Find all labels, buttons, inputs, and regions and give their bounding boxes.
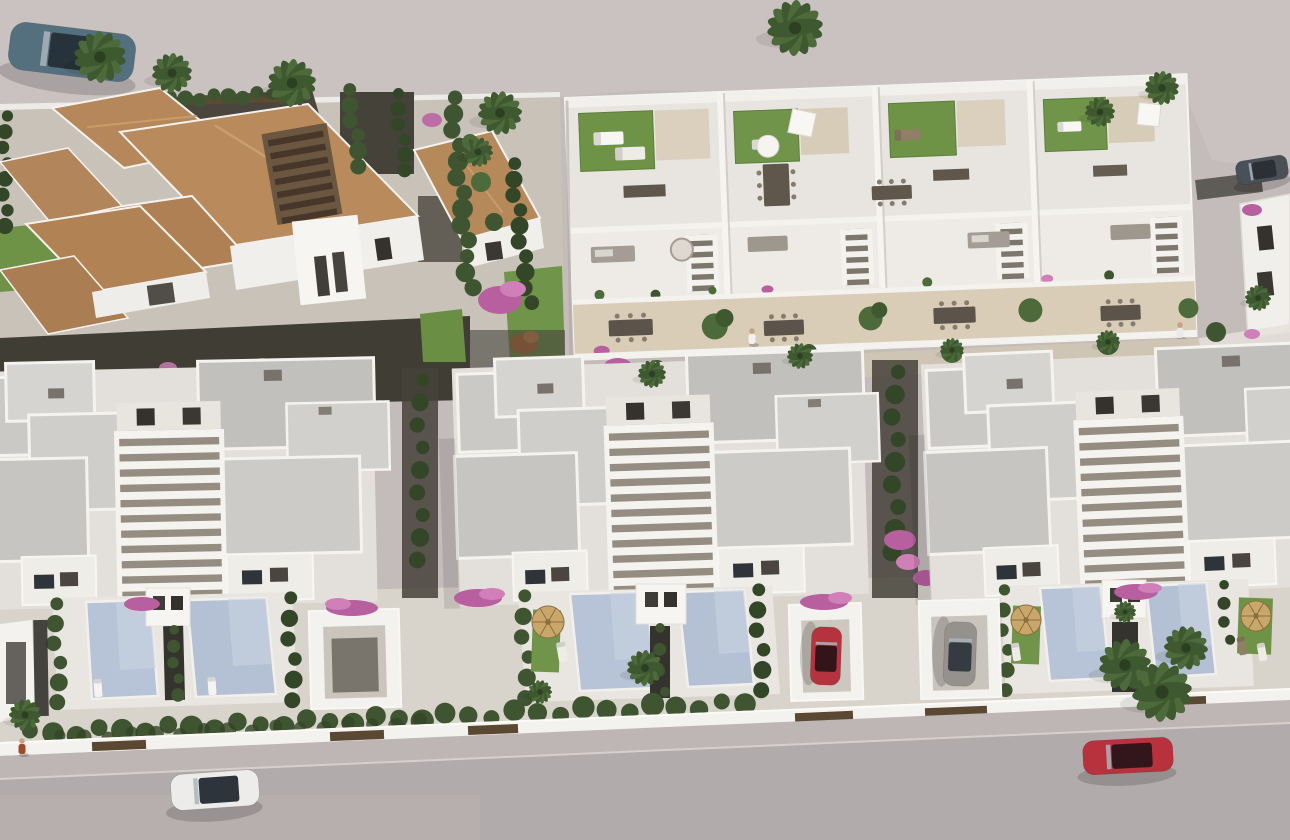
square-parasol: [788, 109, 816, 137]
bougainvillea: [884, 530, 916, 550]
roof-vent: [537, 383, 553, 393]
square-parasol: [1137, 103, 1161, 127]
bougainvillea: [828, 592, 852, 604]
building: [1240, 194, 1290, 338]
sofa: [747, 236, 788, 253]
bougainvillea: [500, 281, 526, 297]
window: [270, 568, 288, 582]
doorway: [1141, 395, 1160, 413]
roof-terrace-tile: [956, 99, 1006, 147]
window: [242, 570, 262, 584]
doorway: [672, 401, 691, 419]
villa-wall: [606, 394, 711, 427]
parked-car-gray: [931, 616, 977, 688]
car-red-driving: [1076, 737, 1177, 789]
roof-garden: [888, 101, 956, 157]
villa-roof: [218, 456, 362, 555]
bougainvillea: [479, 588, 505, 600]
roof-vent: [1222, 355, 1240, 367]
doorway: [171, 596, 183, 610]
doorway: [664, 592, 677, 607]
outdoor-kitchen: [933, 169, 969, 181]
bougainvillea: [124, 597, 160, 611]
stairwell: [840, 228, 874, 285]
cypress-hedge: [409, 374, 430, 569]
flowers: [1242, 204, 1262, 216]
lawn: [420, 309, 466, 362]
villa-wall: [116, 401, 221, 433]
doorway: [1095, 397, 1114, 415]
window: [1257, 225, 1274, 250]
round-parasol: [757, 135, 780, 158]
doorway: [645, 592, 658, 607]
sofa: [1110, 224, 1151, 241]
sun-lounger: [207, 677, 216, 696]
louvered-pergola: [114, 429, 227, 599]
villa-roof: [925, 447, 1051, 554]
sofa-cushion: [595, 249, 613, 257]
window: [1204, 556, 1225, 571]
doorway: [182, 407, 200, 424]
stairwell: [1150, 216, 1184, 273]
window: [1022, 562, 1041, 577]
roof-vent: [264, 370, 282, 381]
window: [1232, 553, 1251, 568]
window: [733, 563, 753, 578]
villa-roof: [0, 458, 89, 563]
roof-vent: [1007, 378, 1023, 389]
straw-parasol: [532, 606, 564, 638]
bougainvillea: [325, 598, 351, 610]
entrance-box: [636, 584, 686, 624]
shrub: [1206, 322, 1226, 342]
window: [34, 574, 54, 588]
window: [996, 565, 1017, 580]
villa-roof: [707, 448, 852, 548]
stairwell: [995, 222, 1029, 279]
gravel-bed: [33, 620, 49, 716]
shrub: [471, 172, 491, 192]
outdoor-kitchen: [623, 184, 665, 198]
roof-vent: [808, 399, 821, 407]
window: [485, 241, 503, 261]
roof-terrace-tile: [654, 109, 710, 161]
roof-vent: [48, 388, 64, 398]
aerial-render: [0, 0, 1290, 840]
villa-roof: [1177, 440, 1290, 542]
shrub: [485, 213, 503, 231]
doorway: [136, 408, 154, 425]
window: [525, 570, 545, 585]
pool-steps: [228, 598, 272, 666]
window: [60, 572, 78, 586]
sofa-cushion: [972, 235, 989, 243]
window: [375, 237, 393, 261]
flowers: [422, 113, 442, 127]
driveway: [331, 637, 378, 692]
daybed: [670, 238, 693, 261]
window: [761, 560, 779, 575]
louvered-pergola: [1073, 416, 1190, 588]
scene-canvas: [0, 0, 1290, 840]
villa-roof: [454, 453, 579, 559]
sun-lounger: [1057, 121, 1081, 132]
driveway: [6, 642, 26, 704]
doorway: [626, 402, 645, 420]
pool-steps: [1072, 586, 1106, 652]
outdoor-kitchen: [1093, 164, 1127, 176]
sun-lounger: [615, 146, 645, 160]
roof-vent: [319, 407, 332, 415]
flowers: [1244, 329, 1260, 339]
garage-door: [147, 282, 176, 305]
roof-vent: [753, 362, 771, 374]
sun-lounger: [593, 131, 623, 145]
sun-lounger: [93, 679, 102, 698]
parked-car-red: [799, 621, 842, 686]
straw-parasol: [1241, 601, 1271, 631]
bougainvillea: [1138, 583, 1162, 593]
window: [551, 567, 569, 582]
louvered-pergola: [604, 422, 719, 593]
straw-parasol: [1011, 605, 1041, 635]
pool-steps: [714, 590, 750, 654]
sun-lounger: [894, 129, 920, 141]
